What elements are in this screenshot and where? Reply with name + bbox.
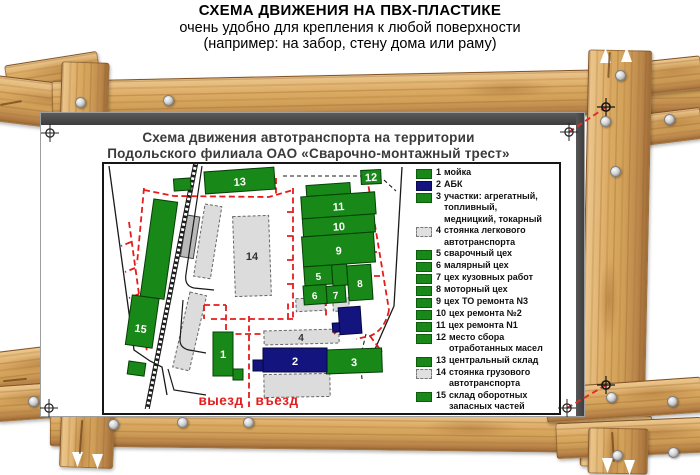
legend-swatch xyxy=(416,169,432,179)
legend-swatch xyxy=(416,181,432,191)
legend-swatch xyxy=(416,322,432,332)
legend-swatch xyxy=(416,286,432,296)
legend-swatch xyxy=(416,392,432,402)
sign-title: Схема движения автотранспорта на террито… xyxy=(41,130,576,162)
legend-item: 15склад оборотных запасных частей xyxy=(416,390,557,413)
legend-num: 2 xyxy=(436,179,441,190)
legend-num: 13 xyxy=(436,355,446,366)
sign-title-line1: Схема движения автотранспорта на террито… xyxy=(41,130,576,146)
screw xyxy=(243,417,254,428)
legend-num: 8 xyxy=(436,284,441,295)
site-map: 15 13 12 11 10 9 5 8 6 7 1 2 3 14 xyxy=(104,164,414,409)
legend-item: 11цех ремонта N1 xyxy=(416,320,557,332)
legend-num: 6 xyxy=(436,260,441,271)
mounting-crosshair-icon xyxy=(40,399,58,417)
mounting-crosshair-icon xyxy=(558,399,576,417)
screw xyxy=(28,396,39,407)
header-subtitle-1: очень удобно для крепления к любой повер… xyxy=(0,20,700,36)
legend-label: цех кузовных работ xyxy=(444,272,533,283)
pvc-sign-panel: Схема движения автотранспорта на террито… xyxy=(40,112,585,417)
building-15-label: 15 xyxy=(134,323,148,337)
scheme-box: 15 13 12 11 10 9 5 8 6 7 1 2 3 14 xyxy=(102,162,561,415)
building-15 xyxy=(125,198,177,349)
screw xyxy=(667,396,678,407)
area-14-label: 14 xyxy=(246,251,259,263)
screw xyxy=(615,70,626,81)
legend-label: мойка xyxy=(444,167,471,178)
legend-label: место сбора отработанных масел xyxy=(449,332,543,355)
legend-swatch xyxy=(416,298,432,308)
page-header: СХЕМА ДВИЖЕНИЯ НА ПВХ-ПЛАСТИКЕ очень удо… xyxy=(0,2,700,52)
building-1-label: 1 xyxy=(220,349,226,361)
mounting-crosshair-wood-icon xyxy=(597,376,615,394)
legend-item: 13центральный склад xyxy=(416,355,557,367)
screw xyxy=(108,419,119,430)
building-cluster xyxy=(296,181,382,305)
legend-item: 9цех ТО ремонта N3 xyxy=(416,296,557,308)
legend-item: 1мойка xyxy=(416,167,557,179)
legend-num: 10 xyxy=(436,308,446,319)
screw xyxy=(668,447,679,458)
legend-label: стоянка грузового автотранспорта xyxy=(449,367,530,390)
legend-label: склад оборотных запасных частей xyxy=(449,390,527,413)
screw xyxy=(612,450,623,461)
legend-num: 1 xyxy=(436,167,441,178)
building-9-label: 9 xyxy=(335,245,342,257)
legend-swatch xyxy=(416,357,432,367)
wood-plank-left-bottom-fingers xyxy=(59,411,115,469)
legend-item: 8моторный цех xyxy=(416,284,557,296)
screw xyxy=(600,116,611,127)
legend-label: цех ТО ремонта N3 xyxy=(444,296,528,307)
building-10-label: 10 xyxy=(332,221,345,234)
mounting-crosshair-icon xyxy=(41,124,59,142)
area-4-label: 4 xyxy=(298,333,304,344)
legend-num: 14 xyxy=(436,367,446,378)
legend-item: 3участки: агрегатный, топливный, медницк… xyxy=(416,191,557,225)
sign-top-edge xyxy=(41,113,584,125)
legend-swatch xyxy=(416,274,432,284)
header-title: СХЕМА ДВИЖЕНИЯ НА ПВХ-ПЛАСТИКЕ xyxy=(0,2,700,19)
building-11-label: 11 xyxy=(332,201,344,214)
sign-right-edge xyxy=(576,113,584,416)
legend-item: 14стоянка грузового автотранспорта xyxy=(416,367,557,390)
screw xyxy=(163,95,174,106)
legend-num: 15 xyxy=(436,390,446,401)
legend-num: 7 xyxy=(436,272,441,283)
legend-item: 10цех ремонта №2 xyxy=(416,308,557,320)
legend-label: цех ремонта №2 xyxy=(449,308,522,319)
mounting-crosshair-wood-icon xyxy=(597,98,615,116)
building-1-annex xyxy=(233,369,243,380)
mounting-crosshair-icon xyxy=(560,123,578,141)
legend-item: 6малярный цех xyxy=(416,260,557,272)
legend-label: стоянка легкового автотранспорта xyxy=(444,225,526,248)
screw xyxy=(610,166,621,177)
legend-label: сварочный цех xyxy=(444,248,512,259)
legend-item: 4стоянка легкового автотранспорта xyxy=(416,225,557,248)
legend-num: 11 xyxy=(436,320,446,331)
legend-num: 4 xyxy=(436,225,441,236)
legend-label: участки: агрегатный, топливный, медницки… xyxy=(444,191,542,225)
entrance-label: въезд xyxy=(255,393,298,408)
legend-label: цех ремонта N1 xyxy=(449,320,518,331)
building-3-label: 3 xyxy=(351,357,358,369)
legend-num: 9 xyxy=(436,296,441,307)
exit-label: выезд xyxy=(198,393,243,408)
legend-swatch xyxy=(416,250,432,260)
legend-num: 12 xyxy=(436,332,446,343)
legend-item: 12место сбора отработанных масел xyxy=(416,332,557,355)
sign-title-line2: Подольского филиала ОАО «Сварочно-монтаж… xyxy=(41,146,576,162)
legend-num: 5 xyxy=(436,248,441,259)
legend-swatch xyxy=(416,310,432,320)
screw xyxy=(664,114,675,125)
building-2-label: 2 xyxy=(292,356,298,368)
legend-label: малярный цех xyxy=(444,260,509,271)
legend-label: моторный цех xyxy=(444,284,508,295)
building-15-annex xyxy=(127,361,146,376)
screw xyxy=(177,417,188,428)
legend-item: 2АБК xyxy=(416,179,557,191)
legend-swatch xyxy=(416,334,432,344)
legend-item: 5сварочный цех xyxy=(416,248,557,260)
legend-label: АБК xyxy=(444,179,462,190)
map-legend: 1мойка 2АБК 3участки: агрегатный, топлив… xyxy=(416,167,557,412)
building-12-label: 12 xyxy=(365,172,378,185)
legend-label: центральный склад xyxy=(449,355,538,366)
legend-swatch xyxy=(416,262,432,272)
legend-item: 7цех кузовных работ xyxy=(416,272,557,284)
product-image: СХЕМА ДВИЖЕНИЯ НА ПВХ-ПЛАСТИКЕ очень удо… xyxy=(0,0,700,475)
building-13-label: 13 xyxy=(233,176,246,189)
legend-num: 3 xyxy=(436,191,441,202)
legend-swatch xyxy=(416,193,432,203)
legend-swatch xyxy=(416,227,432,237)
legend-swatch xyxy=(416,369,432,379)
screw xyxy=(75,97,86,108)
building-2-annex xyxy=(253,360,263,371)
